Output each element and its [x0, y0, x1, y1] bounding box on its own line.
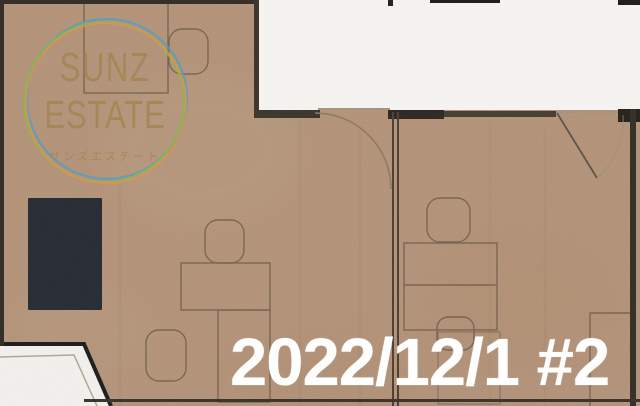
floorplan-image: SUNZ ESTATE サンズエステート 2022/12/1 #2 [0, 0, 640, 406]
date-caption: 2022/12/1 #2 [230, 329, 609, 396]
